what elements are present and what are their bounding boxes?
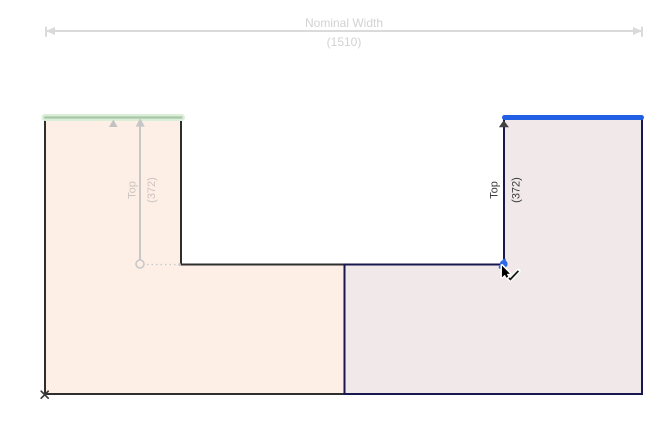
svg-text:Nominal Width: Nominal Width xyxy=(305,16,383,30)
svg-text:(372): (372) xyxy=(146,177,158,203)
svg-text:Top: Top xyxy=(489,181,501,199)
svg-text:Top: Top xyxy=(127,181,139,199)
svg-text:(1510): (1510) xyxy=(327,35,362,49)
svg-text:(372): (372) xyxy=(511,177,523,203)
